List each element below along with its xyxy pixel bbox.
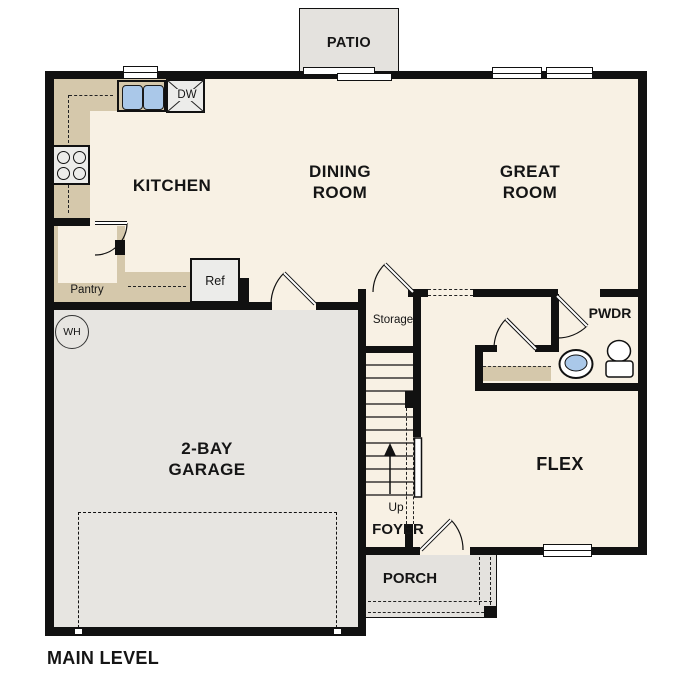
porch-label: PORCH xyxy=(383,570,437,587)
up-label: Up xyxy=(388,500,403,514)
plan-symbols xyxy=(0,0,687,687)
storage-label: Storage xyxy=(373,314,413,326)
dining-room-label: DINING ROOM xyxy=(309,161,371,203)
up-arrow-head xyxy=(384,443,396,456)
doors xyxy=(95,223,587,550)
great-room-label: GREAT ROOM xyxy=(500,161,560,203)
floorplan-main-level: Ref WH xyxy=(0,0,687,687)
pwdr-sink xyxy=(560,350,593,378)
pwdr-label: PWDR xyxy=(589,305,632,321)
stair-handrail xyxy=(415,438,422,497)
foyer-label: FOYER xyxy=(372,521,424,538)
flex-label: FLEX xyxy=(536,454,584,475)
garage-label: 2-BAY GARAGE xyxy=(168,438,245,480)
kitchen-label: KITCHEN xyxy=(133,175,211,196)
dishwasher-label: DW xyxy=(176,89,197,101)
pwdr-toilet xyxy=(606,341,633,378)
pantry-label: Pantry xyxy=(70,284,103,296)
page-title: MAIN LEVEL xyxy=(47,648,159,669)
patio-label: PATIO xyxy=(327,33,371,54)
